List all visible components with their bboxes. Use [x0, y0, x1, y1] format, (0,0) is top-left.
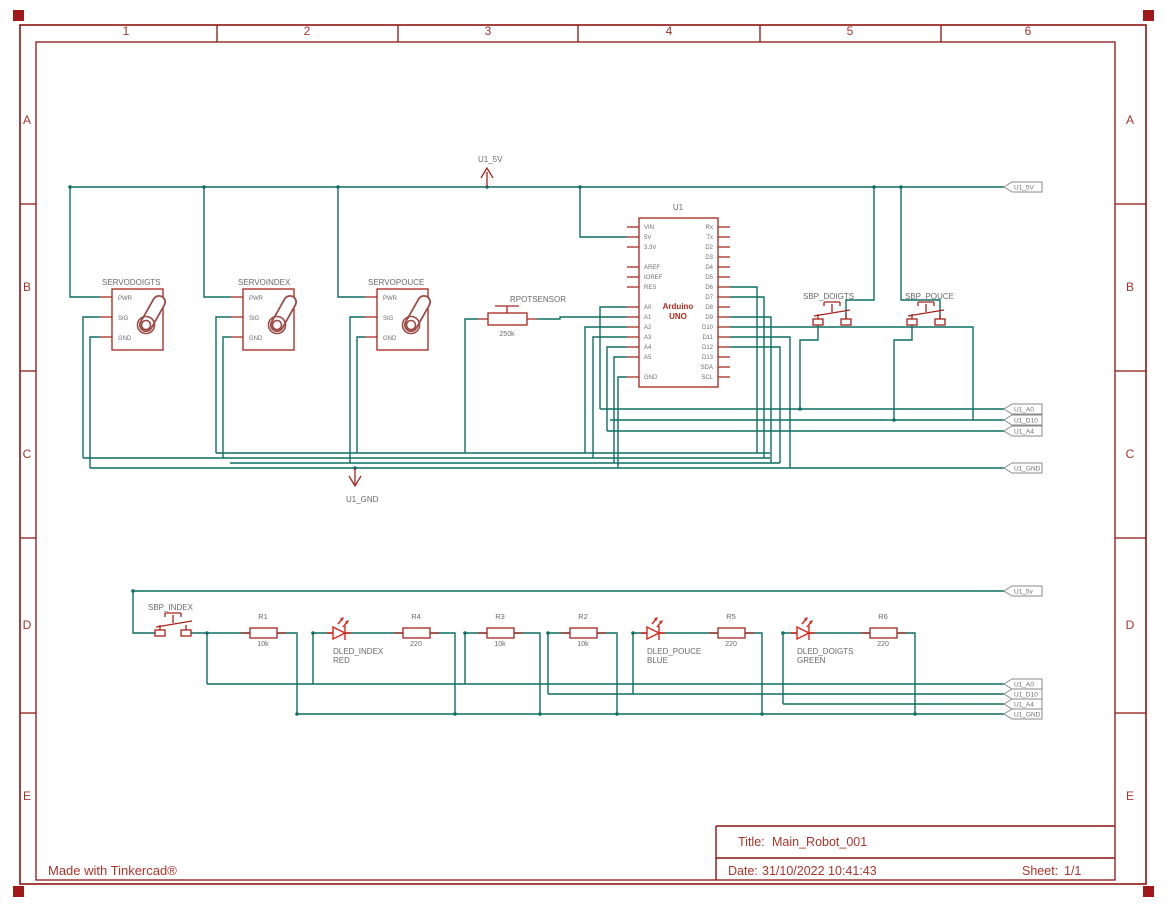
servo-servopouce[interactable]: SERVOPOUCE PWR SIG GND	[365, 278, 428, 350]
resistor-value: 220	[725, 641, 737, 648]
servo-name: SERVODOIGTS	[102, 278, 161, 287]
pin-label: A2	[644, 325, 652, 331]
led-diode-icon	[641, 617, 665, 640]
pin-label: GND	[249, 336, 263, 342]
led-color-label: BLUE	[647, 656, 668, 665]
pin-label: D9	[705, 315, 713, 321]
resistor-body	[570, 628, 597, 638]
outer-border	[20, 25, 1146, 884]
net-flag-label: U1_5V	[1014, 185, 1035, 192]
pin-label: D10	[702, 325, 714, 331]
pin-label: D13	[702, 355, 714, 361]
wire[interactable]	[133, 591, 1004, 714]
pin-label: D12	[702, 345, 714, 351]
corner-marker-bottom-right	[1143, 886, 1154, 897]
servo-pin-stubs	[231, 297, 243, 337]
frame-row-label: B	[1126, 280, 1134, 294]
resistor-name: R6	[878, 612, 888, 621]
resistor-name: R2	[578, 612, 588, 621]
corner-marker-top-left	[13, 10, 24, 21]
led-diode-icon	[791, 617, 815, 640]
frame-row-label: E	[23, 789, 31, 803]
pushbutton-icon	[155, 613, 192, 636]
pin-label: 3.3V	[644, 245, 656, 251]
resistor-name: R1	[258, 612, 268, 621]
button-name: SBP_POUCE	[905, 292, 954, 301]
resistor-name: R5	[726, 612, 736, 621]
power-symbol-gnd[interactable]: U1_GND	[346, 468, 379, 504]
title-block: Title: Main_Robot_001 Date: 31/10/2022 1…	[716, 826, 1115, 880]
frame-row-label: C	[23, 447, 32, 461]
date-label: Date:	[728, 864, 758, 878]
pin-label: VIN	[644, 225, 654, 231]
net-flag-u1-gnd-bottom[interactable]: U1_GND	[1004, 709, 1042, 719]
pin-label: 5V	[644, 235, 651, 241]
pin-label: PWR	[249, 296, 264, 302]
tinkercad-credit: Made with Tinkercad®	[48, 863, 177, 878]
net-flag-label: U1_GND	[1014, 712, 1041, 719]
resistor-r4[interactable]: R4 220	[394, 612, 439, 648]
schematic-page: 1 2 3 4 5 6 A B C D E A B C D E	[0, 0, 1167, 908]
pin-label: A1	[644, 315, 652, 321]
servo-pin-stubs	[100, 297, 112, 337]
pot-name: RPOTSENSOR	[510, 295, 566, 304]
frame-col-label: 2	[304, 24, 311, 38]
led-dled-pouce[interactable]: DLED_POUCE BLUE	[641, 617, 701, 665]
date-value: 31/10/2022 10:41:43	[762, 864, 877, 878]
pushbutton-sbp-index[interactable]: SBP_INDEX	[148, 603, 194, 636]
resistor-value: 220	[410, 641, 422, 648]
resistor-value: 220	[877, 641, 889, 648]
net-flag-u1-a4-bottom[interactable]: U1_A4	[1004, 699, 1042, 709]
frame-row-label: B	[23, 280, 31, 294]
net-flag-label: U1_A4	[1014, 702, 1034, 709]
pin-label: AREF	[644, 265, 660, 271]
net-flag-u1-5v-top[interactable]: U1_5V	[1004, 182, 1042, 192]
net-flags: U1_5V U1_A0 U1_D10 U1_A4 U1_GND U1_5v U1…	[1004, 182, 1042, 719]
pin-label: SIG	[118, 316, 129, 322]
frame-row-label: E	[1126, 789, 1134, 803]
pot-value: 250k	[499, 331, 515, 338]
frame-col-label: 4	[666, 24, 673, 38]
pin-label: A3	[644, 335, 652, 341]
frame-col-label: 5	[847, 24, 854, 38]
net-flag-label: U1_A0	[1014, 682, 1034, 689]
net-flag-u1-d10-top[interactable]: U1_D10	[1004, 415, 1042, 425]
resistor-body	[250, 628, 277, 638]
pin-label: PWR	[383, 296, 398, 302]
pin-label: D6	[705, 285, 713, 291]
net-flag-label: U1_D10	[1014, 418, 1038, 425]
net-flag-u1-a0-bottom[interactable]: U1_A0	[1004, 679, 1042, 689]
power-symbol-5v[interactable]: U1_5V	[478, 155, 503, 187]
resistor-name: R4	[411, 612, 421, 621]
led-diode-icon	[327, 617, 351, 640]
servo-servodoigts[interactable]: SERVODOIGTS PWR SIG GND	[100, 278, 163, 350]
net-flag-u1-a0-top[interactable]: U1_A0	[1004, 404, 1042, 414]
net-flag-label: U1_5v	[1014, 589, 1034, 596]
resistor-r5[interactable]: R5 220	[709, 612, 754, 648]
pin-label: SIG	[249, 316, 260, 322]
resistor-value: 10k	[494, 641, 506, 648]
wire[interactable]	[800, 325, 912, 420]
gnd-net-label: U1_GND	[346, 495, 379, 504]
pin-label: D7	[705, 295, 713, 301]
resistor-body	[870, 628, 897, 638]
gnd-arrow-down-icon	[349, 468, 361, 486]
net-flag-label: U1_A0	[1014, 407, 1034, 414]
servo-servoindex[interactable]: SERVOINDEX PWR SIG GND	[231, 278, 294, 350]
led-dled-index[interactable]: DLED_INDEX RED	[327, 617, 384, 665]
pin-label: D11	[702, 335, 713, 341]
frame-row-label: C	[1126, 447, 1135, 461]
pin-label: D3	[705, 255, 713, 261]
net-flag-label: U1_D10	[1014, 692, 1038, 699]
net-flag-u1-a4-top[interactable]: U1_A4	[1004, 426, 1042, 436]
pot-wiper-icon	[495, 306, 519, 313]
pin-label: SIG	[383, 316, 394, 322]
resistor-value: 10k	[257, 641, 269, 648]
led-color-label: RED	[333, 656, 350, 665]
servo-pin-stubs	[365, 297, 377, 337]
pin-label: Tx	[706, 235, 713, 241]
sheet-label: Sheet:	[1022, 864, 1058, 878]
pin-label: GND	[383, 336, 397, 342]
pin-label: RES	[644, 285, 656, 291]
schematic-canvas: 1 2 3 4 5 6 A B C D E A B C D E	[0, 0, 1167, 908]
resistor-value: 10k	[577, 641, 589, 648]
led-name: DLED_DOIGTS	[797, 647, 853, 656]
resistor-r6[interactable]: R6 220	[861, 612, 906, 648]
frame-row-label: D	[23, 618, 32, 632]
pin-label: Rx	[706, 225, 713, 231]
resistor-r2[interactable]: R2 10k	[561, 612, 606, 648]
arduino-refdes: U1	[673, 203, 684, 212]
pin-label: D4	[705, 265, 713, 271]
led-name: DLED_POUCE	[647, 647, 701, 656]
pin-label: GND	[118, 336, 132, 342]
net-flag-u1-d10-bottom[interactable]: U1_D10	[1004, 689, 1042, 699]
net-flag-label: U1_A4	[1014, 429, 1034, 436]
inner-border	[36, 42, 1115, 880]
frame-col-label: 3	[485, 24, 492, 38]
pin-label: D2	[705, 245, 713, 251]
pin-label: IOREF	[644, 275, 663, 281]
power-arrow-up-icon	[481, 168, 493, 187]
pin-label: A5	[644, 355, 652, 361]
button-name: SBP_INDEX	[148, 603, 194, 612]
servo-name: SERVOPOUCE	[368, 278, 424, 287]
resistor-body	[487, 628, 514, 638]
pin-label: PWR	[118, 296, 133, 302]
net-flag-label: U1_GND	[1014, 466, 1041, 473]
net-flag-u1-5v-bottom[interactable]: U1_5v	[1004, 586, 1042, 596]
net-flag-u1-gnd-top[interactable]: U1_GND	[1004, 463, 1042, 473]
arduino-right-pin-stubs	[718, 227, 730, 377]
arduino-title-line2: UNO	[669, 312, 687, 321]
frame-row-label: D	[1126, 618, 1135, 632]
button-name: SBP_DOIGTS	[803, 292, 854, 301]
arduino-title-line1: Arduino	[663, 302, 694, 311]
potentiometer-rpotsensor[interactable]: RPOTSENSOR 250k	[478, 295, 566, 338]
pin-label: A4	[644, 345, 652, 351]
frame-col-label: 1	[123, 24, 130, 38]
frame-row-label: A	[23, 113, 31, 127]
pin-label: SCL	[701, 375, 713, 381]
resistor-body	[718, 628, 745, 638]
pin-label: A0	[644, 305, 652, 311]
power-net-label: U1_5V	[478, 155, 503, 164]
title-label: Title:	[738, 835, 765, 849]
sheet-value: 1/1	[1064, 864, 1081, 878]
arduino-left-pin-stubs	[627, 227, 639, 377]
frame-row-label: A	[1126, 113, 1134, 127]
led-name: DLED_INDEX	[333, 647, 384, 656]
pin-label: D8	[705, 305, 713, 311]
servo-name: SERVOINDEX	[238, 278, 291, 287]
pin-label: D5	[705, 275, 713, 281]
led-color-label: GREEN	[797, 656, 826, 665]
led-dled-doigts[interactable]: DLED_DOIGTS GREEN	[791, 617, 853, 665]
wire-harness[interactable]	[68, 185, 1004, 716]
title-value: Main_Robot_001	[772, 835, 867, 849]
pot-body	[488, 313, 527, 325]
frame-col-label: 6	[1025, 24, 1032, 38]
resistor-r1[interactable]: R1 10k	[241, 612, 286, 648]
resistor-name: R3	[495, 612, 505, 621]
corner-marker-top-right	[1143, 10, 1154, 21]
arduino-u1[interactable]: U1 VIN 5V 3.3V AREF IOREF RES A0 A1 A2 A…	[627, 203, 730, 387]
pin-label: SDA	[701, 365, 713, 371]
wire-gnd-mesh[interactable]	[83, 453, 1004, 468]
corner-marker-bottom-left	[13, 886, 24, 897]
resistor-r3[interactable]: R3 10k	[478, 612, 523, 648]
resistor-body	[403, 628, 430, 638]
pushbutton-sbp-pouce[interactable]: SBP_POUCE	[905, 292, 954, 325]
pin-label: GND	[644, 375, 658, 381]
